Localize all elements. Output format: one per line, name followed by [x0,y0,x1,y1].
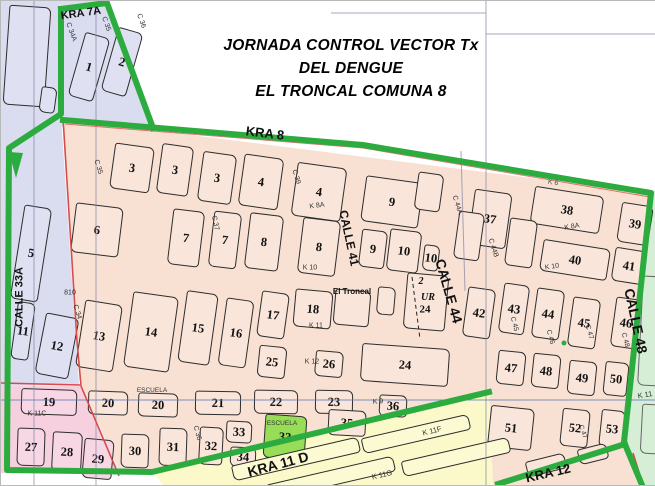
block-number: 4 [315,185,323,198]
street-label-el-troncal: El Troncal [333,288,371,296]
map-block-20: 20 [88,390,129,415]
map-parcel [413,171,444,212]
block-number: 39 [628,217,642,231]
block-number: 15 [191,321,205,335]
block-number: 4 [257,175,265,188]
map-block-52: 52 [559,408,591,449]
map-block-47: 47 [495,350,526,387]
map-block-31: 31 [158,428,187,467]
block-number: 32 [204,439,217,452]
street-label-k-11c: K 11C [28,411,47,418]
map-block-25: 25 [256,345,287,380]
street-label-escuela: ESCUELA [137,388,167,395]
block-number: 27 [25,441,38,454]
block-number: 1 [84,60,93,74]
block-number: 8 [260,235,268,248]
street-label-k-10: K 10 [303,265,317,272]
map-block-49: 49 [566,360,597,397]
street-label-k-11: K 11 [309,323,323,330]
vector-control-map: 1251112192728293334493738396778891010404… [0,0,655,486]
block-number: 28 [60,445,73,458]
block-number: 3 [213,171,221,184]
street-label-k-6: K 6 [547,179,558,187]
map-block-27: 27 [16,428,45,467]
block-number: 49 [575,371,589,385]
block-number: 42 [472,306,486,320]
block-number: 41 [622,259,636,273]
map-block-30: 30 [120,434,149,469]
block-number: 17 [266,308,280,322]
block-number: 5 [27,246,35,259]
block-number: 20 [102,397,115,410]
map-block-35: 35 [327,409,366,437]
street-label-calle-33a: CALLE 33A [15,267,26,327]
block-number: 48 [539,364,553,378]
block-number: 25 [265,355,279,369]
block-number: 35 [340,416,353,429]
block-number: 3 [128,161,136,174]
street-label-ur: UR [421,293,435,303]
block-number: 21 [212,397,225,410]
block-number: 19 [43,396,56,409]
map-block-4: 4 [238,153,285,210]
block-number: 20 [152,399,165,412]
block-number: 2 [117,55,126,69]
block-number: 23 [328,396,341,409]
block-number: 26 [322,357,336,371]
block-number: 16 [229,326,243,340]
block-number: 8 [315,240,323,253]
map-block-6: 6 [70,202,124,257]
block-number: 18 [306,302,320,316]
title-line-2: DEL DENGUE [186,57,516,80]
block-number: 31 [167,441,180,454]
block-number: 40 [568,253,582,267]
street-label-k-9: K 9 [373,398,384,406]
block-number: 33 [278,430,291,443]
block-number: 51 [504,421,518,435]
block-number: 37 [483,212,497,226]
map-block-7: 7 [167,208,206,267]
street-label-24: 24 [420,305,431,316]
block-number: 12 [50,339,65,354]
block-number: 9 [369,242,377,255]
block-number: 13 [92,329,106,343]
map-block-39: 39 [616,202,654,247]
block-number: 29 [91,452,105,466]
map-parcel [640,404,655,455]
block-number: 44 [541,307,555,321]
map-title: JORNADA CONTROL VECTOR Tx DEL DENGUE EL … [186,34,516,103]
street-label-2: 2 [419,277,424,287]
block-number: 43 [507,302,521,316]
block-number: 50 [609,372,623,386]
map-block-3: 3 [109,142,155,193]
map-block-20: 20 [138,392,179,417]
block-number: 6 [93,223,101,236]
map-block-3: 3 [197,151,238,205]
map-block-50: 50 [602,361,629,397]
block-number: 3 [171,163,179,176]
street-label-escuela: ESCUELA [267,421,297,428]
block-number: 24 [398,358,411,371]
map-block-28: 28 [51,431,83,473]
block-number: 10 [397,244,411,258]
block-number: 53 [605,422,619,436]
title-line-1: JORNADA CONTROL VECTOR Tx [186,34,516,57]
block-number: 33 [232,425,245,438]
block-number: 38 [560,203,574,217]
map-block-10: 10 [386,228,423,274]
map-block-48: 48 [530,353,561,390]
street-label-810: 810 [64,290,76,297]
block-number: 7 [182,231,190,244]
map-block-22: 22 [254,390,298,415]
street-label-k-12: K 12 [305,359,319,366]
map-block-8: 8 [244,212,285,272]
map-block-9: 9 [358,229,388,270]
block-number: 30 [129,445,142,458]
block-number: 47 [504,361,518,375]
title-line-3: EL TRONCAL COMUNA 8 [186,80,516,103]
block-number: 36 [386,399,399,412]
block-number: 7 [221,233,229,246]
map-block-21: 21 [195,391,241,416]
map-block-24: 24 [360,343,450,387]
block-number: 9 [388,195,396,208]
block-number: 22 [270,396,283,409]
block-number: 14 [144,325,158,339]
map-block-33: 33 [225,420,252,443]
map-parcel [376,286,396,315]
map-block-29: 29 [81,438,114,480]
map-block-32: 32 [198,426,224,465]
